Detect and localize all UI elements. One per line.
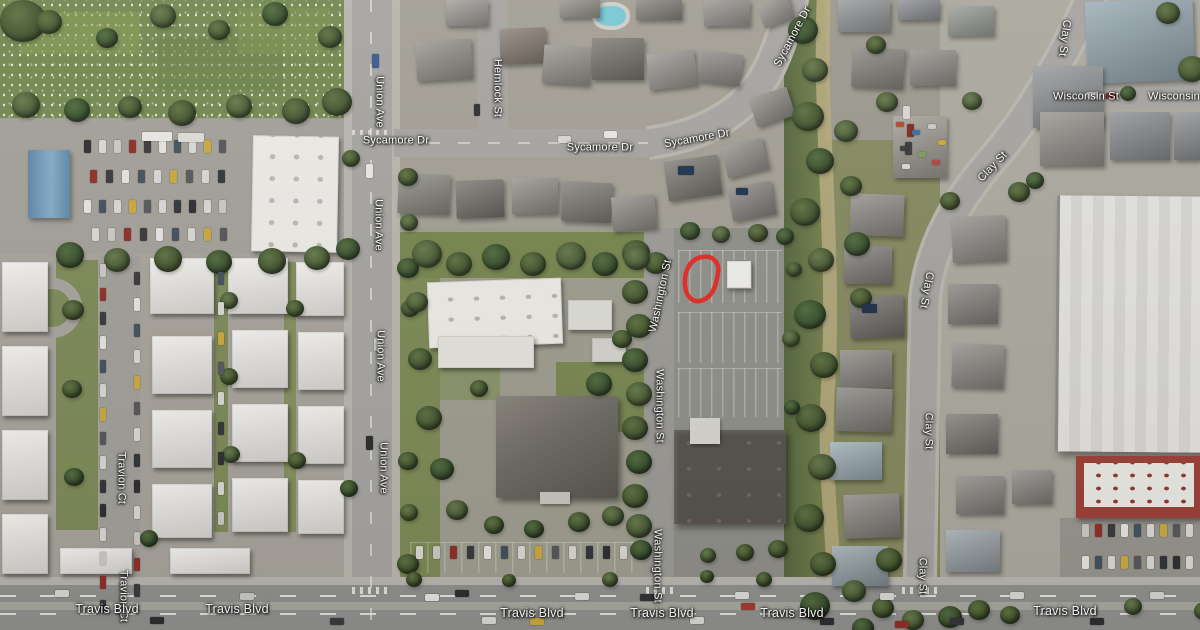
- house-roof: [561, 181, 613, 224]
- car: [450, 546, 457, 559]
- tree: [622, 280, 648, 304]
- car: [218, 332, 224, 345]
- house-roof: [1040, 112, 1104, 166]
- car: [99, 200, 106, 213]
- house-roof: [830, 442, 882, 480]
- house-roof: [446, 0, 488, 26]
- tree: [104, 248, 130, 272]
- apartment-building: [152, 484, 212, 538]
- car: [134, 350, 140, 363]
- car: [138, 170, 145, 183]
- car: [218, 362, 224, 375]
- tree: [602, 506, 624, 526]
- tree: [962, 92, 982, 110]
- road-label-travis-blvd: Travis Blvd: [630, 607, 694, 620]
- tree: [602, 572, 618, 587]
- car: [174, 200, 181, 213]
- car: [100, 576, 106, 589]
- car: [484, 546, 491, 559]
- tree: [482, 244, 510, 270]
- road-label-washington-st: Washington St: [652, 529, 663, 603]
- car: [108, 228, 115, 241]
- car: [903, 106, 910, 119]
- tree: [416, 406, 442, 430]
- red-roof-building-ridge: [1084, 463, 1194, 507]
- road-label-union-ave: Union Ave: [378, 442, 389, 494]
- tree: [840, 176, 862, 196]
- tree: [446, 500, 468, 520]
- tree: [782, 330, 800, 347]
- car: [100, 504, 106, 517]
- car: [736, 188, 748, 195]
- car: [218, 452, 224, 465]
- car: [172, 228, 179, 241]
- tree: [1124, 598, 1142, 615]
- car: [106, 170, 113, 183]
- car: [159, 200, 166, 213]
- car: [100, 480, 106, 493]
- car: [1186, 524, 1193, 537]
- tree: [226, 94, 252, 118]
- tree: [1156, 2, 1180, 24]
- road-label-hemlock-st: Hemlock St: [492, 59, 503, 117]
- tree: [792, 102, 824, 131]
- tree: [808, 454, 836, 480]
- road-label-travis-blvd: Travis Blvd: [205, 603, 269, 616]
- tree: [470, 380, 488, 397]
- tree: [62, 300, 84, 320]
- tree: [12, 92, 40, 118]
- house-roof: [849, 193, 904, 237]
- tree: [1178, 56, 1200, 82]
- apartment-building: [152, 336, 212, 394]
- car: [467, 546, 474, 559]
- car: [455, 590, 469, 597]
- house-roof: [951, 343, 1005, 389]
- tree: [630, 540, 652, 560]
- car: [204, 140, 211, 153]
- road-label-travion-ct: Travion Ct: [116, 452, 127, 504]
- car: [129, 200, 136, 213]
- car: [1160, 524, 1167, 537]
- car: [124, 228, 131, 241]
- house-roof: [946, 414, 998, 454]
- car: [1108, 524, 1115, 537]
- tree: [806, 148, 834, 174]
- house-roof: [611, 195, 657, 232]
- car: [204, 228, 211, 241]
- car: [1108, 556, 1115, 569]
- tree: [118, 96, 142, 118]
- car: [99, 140, 106, 153]
- tree: [680, 222, 700, 240]
- car: [134, 272, 140, 285]
- car: [1082, 524, 1089, 537]
- car: [100, 528, 106, 541]
- car: [678, 166, 694, 175]
- tree: [262, 2, 288, 26]
- tree: [626, 382, 652, 406]
- small-structure: [690, 418, 720, 444]
- tree: [318, 26, 342, 48]
- car: [1090, 618, 1104, 625]
- tree: [784, 400, 800, 415]
- car: [501, 546, 508, 559]
- house-roof: [542, 44, 593, 85]
- tree: [524, 520, 544, 538]
- car: [144, 140, 151, 153]
- house-roof: [910, 50, 956, 86]
- apartment-building: [232, 478, 288, 532]
- house-roof: [560, 0, 600, 18]
- car: [189, 200, 196, 213]
- tree: [794, 504, 824, 532]
- car: [1010, 592, 1024, 599]
- tree: [398, 452, 418, 470]
- car: [154, 170, 161, 183]
- tree: [206, 250, 232, 274]
- tree: [736, 544, 754, 561]
- tree: [876, 92, 898, 112]
- car: [218, 482, 224, 495]
- road-label-union-ave: Union Ave: [374, 76, 385, 128]
- tree: [842, 580, 866, 602]
- car: [741, 603, 755, 610]
- crosswalk: [352, 587, 392, 594]
- tree: [342, 150, 360, 167]
- house-roof: [898, 0, 940, 20]
- tree: [786, 262, 802, 277]
- car: [114, 140, 121, 153]
- road-label-travis-blvd: Travis Blvd: [760, 607, 824, 620]
- car: [330, 618, 344, 625]
- car: [1147, 556, 1154, 569]
- house-roof: [951, 215, 1007, 263]
- tree: [258, 248, 286, 274]
- tree: [154, 246, 182, 272]
- parking-stalls: [678, 368, 782, 417]
- tree: [940, 192, 960, 210]
- warehouse-building: [1055, 195, 1200, 452]
- car: [902, 164, 910, 169]
- house-roof: [704, 0, 750, 26]
- tree: [340, 480, 358, 497]
- tree: [412, 240, 442, 268]
- car: [372, 54, 379, 68]
- road-label-sycamore-dr: Sycamore Dr: [567, 143, 633, 154]
- apartment-building: [298, 406, 344, 464]
- apartment-building: [2, 262, 48, 332]
- car: [552, 546, 559, 559]
- tree: [700, 548, 716, 563]
- tree: [592, 252, 618, 276]
- tree: [398, 168, 418, 186]
- car: [134, 428, 140, 441]
- car: [134, 402, 140, 415]
- tree: [622, 484, 648, 508]
- travis-sidewalk: [0, 577, 1200, 585]
- car: [518, 546, 525, 559]
- tree: [810, 352, 838, 378]
- house-roof: [835, 387, 893, 433]
- car: [1095, 556, 1102, 569]
- house-roof: [948, 6, 994, 36]
- car: [912, 130, 920, 135]
- car: [178, 133, 204, 142]
- travis-lane-dashes: [0, 613, 1200, 615]
- tree: [802, 58, 828, 82]
- car: [880, 593, 894, 600]
- car: [482, 617, 496, 624]
- tree: [502, 574, 516, 587]
- house-roof: [948, 284, 998, 324]
- car: [1150, 592, 1164, 599]
- car: [433, 546, 440, 559]
- house-roof: [698, 49, 744, 87]
- tree: [400, 504, 418, 521]
- car: [219, 140, 226, 153]
- car: [134, 506, 140, 519]
- tree: [776, 228, 794, 245]
- tree: [62, 380, 82, 398]
- church-porch: [540, 492, 570, 504]
- apartment-building: [2, 346, 48, 416]
- church-building: [496, 396, 618, 498]
- car: [1134, 556, 1141, 569]
- car: [218, 422, 224, 435]
- tree: [282, 98, 310, 124]
- car: [416, 546, 423, 559]
- car: [620, 546, 627, 559]
- tree: [286, 300, 304, 317]
- car: [535, 546, 542, 559]
- tree: [304, 246, 330, 270]
- union-lane-dashes: [370, 0, 372, 628]
- car: [129, 140, 136, 153]
- house-roof: [663, 154, 722, 201]
- tree: [756, 572, 772, 587]
- tree: [568, 512, 590, 532]
- car: [188, 228, 195, 241]
- tree: [446, 252, 472, 276]
- tree: [700, 570, 714, 583]
- car: [134, 376, 140, 389]
- car: [366, 164, 373, 178]
- car: [100, 552, 106, 565]
- tree: [222, 446, 240, 463]
- car: [114, 200, 121, 213]
- car: [1147, 524, 1154, 537]
- car: [134, 298, 140, 311]
- car: [575, 593, 589, 600]
- apartment-building: [170, 548, 250, 574]
- car: [90, 170, 97, 183]
- tree: [834, 120, 858, 142]
- car: [218, 170, 225, 183]
- campus-outbuilding: [568, 300, 612, 330]
- car: [1173, 556, 1180, 569]
- car: [1173, 524, 1180, 537]
- car: [204, 200, 211, 213]
- car: [950, 618, 964, 625]
- tree: [622, 416, 648, 440]
- apartment-building: [298, 480, 344, 534]
- car: [900, 146, 908, 151]
- car: [240, 593, 254, 600]
- car: [586, 546, 593, 559]
- tree: [866, 36, 886, 54]
- car: [144, 200, 151, 213]
- house-roof: [636, 0, 682, 20]
- road-label-union-ave: Union Ave: [373, 199, 384, 251]
- house-roof: [1012, 470, 1052, 504]
- car: [100, 264, 106, 277]
- car: [100, 456, 106, 469]
- parking-stalls: [678, 312, 782, 363]
- tree: [1026, 172, 1044, 189]
- car: [92, 228, 99, 241]
- tree: [790, 198, 820, 226]
- car: [186, 170, 193, 183]
- car: [218, 272, 224, 285]
- house-roof: [946, 530, 1000, 572]
- car: [218, 392, 224, 405]
- car: [896, 122, 904, 127]
- tree: [626, 514, 652, 538]
- road-label-wisconsin-st: Wisconsin St: [1053, 92, 1119, 103]
- apartment-building: [152, 410, 212, 468]
- car: [366, 436, 373, 450]
- car: [134, 454, 140, 467]
- car: [100, 384, 106, 397]
- car: [84, 140, 91, 153]
- car: [55, 590, 69, 597]
- tree: [808, 248, 834, 272]
- car: [1121, 524, 1128, 537]
- tree: [64, 468, 84, 486]
- tree: [400, 214, 418, 231]
- car: [150, 617, 164, 624]
- tree: [430, 458, 454, 480]
- tree: [64, 98, 90, 122]
- tree: [810, 552, 836, 576]
- apartment-building: [298, 332, 344, 390]
- car: [156, 228, 163, 241]
- car: [140, 228, 147, 241]
- apartment-building: [2, 514, 48, 574]
- house-roof: [455, 179, 504, 219]
- car: [1121, 556, 1128, 569]
- house-roof: [415, 39, 473, 82]
- road-label-clay-st: Clay St: [917, 558, 928, 595]
- car: [569, 546, 576, 559]
- road-label-travis-blvd: Travis Blvd: [500, 607, 564, 620]
- car: [100, 408, 106, 421]
- tree: [288, 452, 306, 469]
- car: [219, 200, 226, 213]
- blue-roof-building: [28, 150, 70, 218]
- tree: [406, 572, 422, 587]
- car: [142, 132, 172, 141]
- apartment-building: [2, 430, 48, 500]
- car: [603, 546, 610, 559]
- car: [134, 480, 140, 493]
- car: [928, 124, 936, 129]
- car: [895, 621, 909, 628]
- car: [100, 336, 106, 349]
- car: [100, 360, 106, 373]
- union-sidewalk: [392, 0, 400, 630]
- tree: [712, 226, 730, 243]
- car: [134, 324, 140, 337]
- road-label-sycamore-dr: Sycamore Dr: [363, 136, 429, 147]
- tree: [168, 100, 196, 126]
- road-label-washington-st: Washington St: [654, 369, 665, 443]
- tree: [322, 88, 352, 116]
- car: [604, 131, 617, 138]
- satellite-map[interactable]: Sycamore Dr Sycamore Dr Sycamore Dr Syca…: [0, 0, 1200, 630]
- house-roof: [1174, 112, 1200, 160]
- car: [170, 170, 177, 183]
- car: [202, 170, 209, 183]
- car: [122, 170, 129, 183]
- car: [100, 288, 106, 301]
- car: [100, 312, 106, 325]
- tree: [872, 598, 894, 618]
- tree: [876, 548, 902, 572]
- tree: [1120, 86, 1136, 101]
- tree: [484, 516, 504, 534]
- car: [134, 558, 140, 571]
- commercial-building: [251, 135, 339, 252]
- tree: [624, 246, 650, 270]
- tree: [748, 224, 768, 242]
- dark-flat-roof-building: [674, 430, 786, 524]
- car: [1186, 556, 1193, 569]
- house-roof: [843, 493, 901, 539]
- tree: [406, 292, 428, 312]
- car: [862, 304, 877, 313]
- tree: [586, 372, 612, 396]
- car: [918, 152, 926, 157]
- tree: [794, 300, 826, 329]
- car: [474, 104, 480, 116]
- car: [938, 140, 946, 145]
- house-roof: [512, 178, 558, 214]
- house-roof: [840, 350, 892, 388]
- tree: [408, 348, 432, 370]
- car: [932, 160, 940, 165]
- car: [1095, 524, 1102, 537]
- car: [218, 512, 224, 525]
- car: [220, 228, 227, 241]
- tree: [96, 28, 118, 48]
- car: [425, 594, 439, 601]
- car: [84, 200, 91, 213]
- school-building-wing: [438, 336, 534, 368]
- tree: [1000, 606, 1020, 624]
- apartment-building: [232, 330, 288, 388]
- tree: [844, 232, 870, 256]
- backyard-pool: [596, 6, 626, 26]
- car: [1160, 556, 1167, 569]
- house-roof: [592, 38, 644, 80]
- parking-lot-hut: [727, 261, 751, 288]
- car: [134, 532, 140, 545]
- house-roof: [646, 50, 698, 91]
- car: [1134, 524, 1141, 537]
- road-label-clay-st: Clay St: [923, 413, 934, 450]
